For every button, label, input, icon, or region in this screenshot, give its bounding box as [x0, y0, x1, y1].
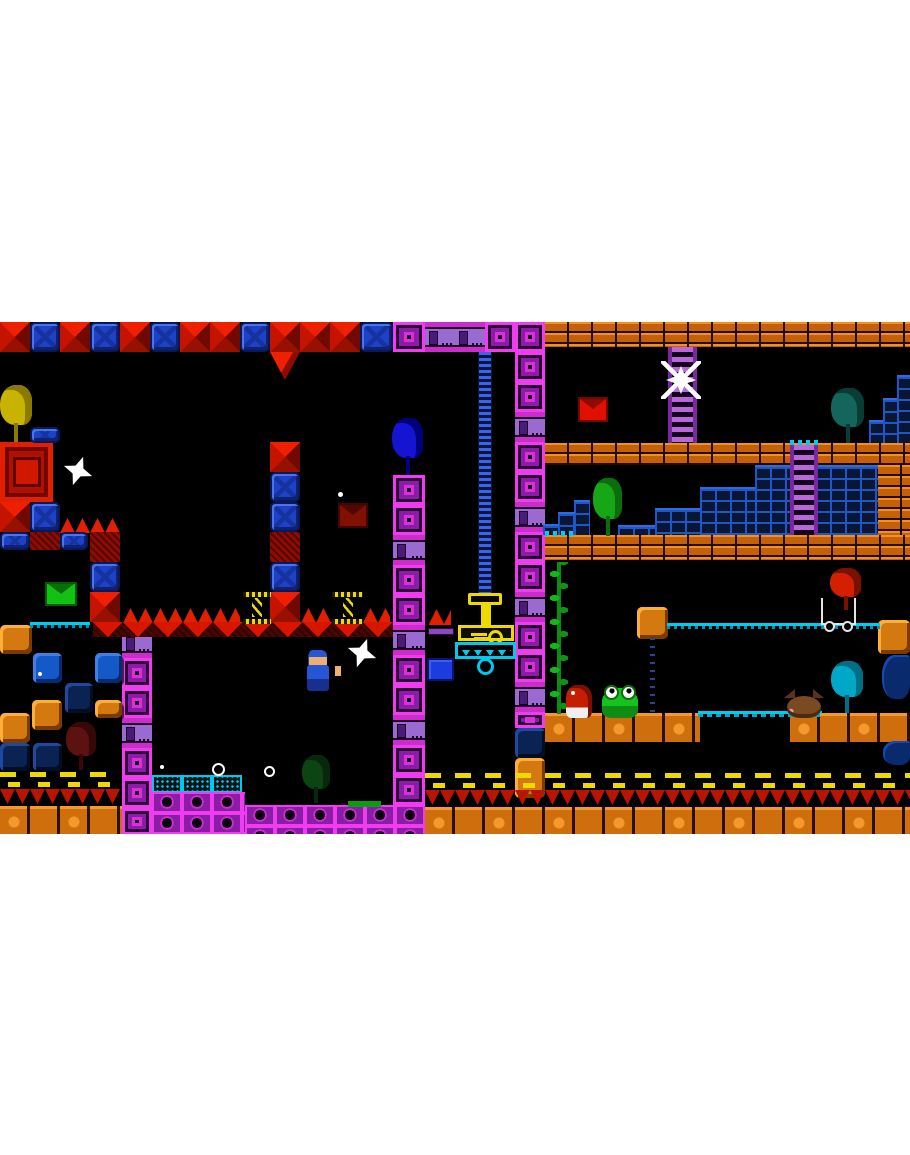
blue-block	[60, 532, 88, 550]
orange-block	[637, 607, 668, 639]
magenta-block-strip	[152, 792, 245, 834]
blue-brick-steps	[897, 375, 910, 443]
screenshot-page	[0, 0, 910, 1155]
navy-cave-block	[33, 743, 62, 771]
orange-brick-platform	[545, 322, 910, 347]
red-spike-block	[120, 322, 150, 352]
magenta-block	[515, 532, 545, 562]
red-spike-block	[270, 322, 300, 352]
navy-cave-block	[515, 728, 545, 758]
magenta-block	[393, 745, 425, 775]
white-cart	[821, 598, 856, 625]
red-spike-triangle	[270, 352, 300, 380]
press-cap	[468, 593, 502, 605]
yellow-spring	[332, 592, 363, 624]
cyan-circuit-platform	[182, 775, 212, 793]
water	[883, 741, 910, 765]
magenta-block	[515, 562, 545, 592]
orange-block	[0, 625, 32, 654]
press-stem	[481, 605, 491, 626]
magenta-block	[515, 652, 545, 682]
yellow-dash-band	[0, 772, 120, 789]
green-envelope	[45, 582, 77, 606]
yellow-bird	[0, 385, 36, 442]
blue-crate	[427, 658, 454, 681]
red-hatch-block	[30, 532, 60, 550]
red-spike-block	[300, 322, 330, 352]
spike-row-up	[123, 608, 240, 623]
red-drip-band	[0, 789, 120, 806]
hook-ring	[477, 658, 494, 675]
blue-block	[90, 562, 120, 592]
darkteal-bird	[831, 388, 868, 443]
blue-brick-steps	[574, 500, 590, 535]
purple-machine-block	[393, 625, 425, 655]
sparkle-ring	[264, 766, 275, 777]
magenta-block	[515, 352, 545, 382]
orange-ground	[425, 807, 910, 834]
red-hatch-block	[270, 532, 300, 562]
cyan-circuit-platform	[152, 775, 182, 793]
grabber-platform	[455, 642, 516, 659]
white-star	[343, 634, 381, 672]
magenta-block-strip	[245, 805, 425, 834]
blue-brick-steps	[655, 508, 700, 535]
sparkle-dot	[338, 492, 343, 497]
magenta-block	[393, 775, 425, 805]
brown-bat	[787, 696, 821, 718]
spike-row-up	[301, 608, 331, 623]
orange-block	[0, 713, 30, 743]
red-spike-block	[60, 322, 90, 352]
blue-block	[270, 472, 300, 502]
magenta-block	[515, 382, 545, 412]
white-star	[59, 452, 97, 490]
player-character	[305, 650, 333, 692]
game-playfield[interactable]	[0, 322, 910, 834]
blue-brick-steps	[700, 487, 755, 535]
blue-block	[270, 502, 300, 532]
magenta-block	[515, 712, 545, 728]
navy-cave-block	[0, 743, 30, 771]
blue-block	[150, 322, 180, 352]
cyan-rail	[30, 622, 90, 628]
red-spike-block	[90, 592, 120, 622]
white-spider	[662, 362, 700, 398]
magenta-block	[515, 622, 545, 652]
blue-block	[30, 322, 60, 352]
magenta-block	[515, 472, 545, 502]
magenta-block	[393, 322, 425, 352]
darkgreen-bird	[302, 755, 333, 803]
cyan-dashes	[545, 531, 577, 536]
darkred-bird	[66, 722, 99, 770]
red-spike-block	[270, 442, 300, 472]
water	[882, 655, 910, 699]
spike-row-up	[60, 518, 120, 533]
purple-ladder	[790, 445, 818, 535]
purple-machine-block	[515, 682, 545, 712]
blue-brick-steps	[869, 420, 883, 443]
purple-machine-block	[515, 592, 545, 622]
magenta-block	[393, 685, 425, 715]
red-spike-block	[330, 322, 360, 352]
yellow-spring	[243, 592, 271, 624]
magenta-block	[485, 322, 515, 352]
magenta-block	[393, 655, 425, 685]
orange-brick-platform	[878, 465, 910, 535]
key-bar	[458, 625, 514, 641]
orange-brick-platform	[545, 443, 910, 465]
red-drip-band	[425, 790, 910, 807]
sparkle-dot	[38, 672, 42, 676]
yellow-dash-band	[425, 773, 910, 790]
spike-row-up	[429, 609, 451, 625]
spike-row-up	[363, 608, 390, 623]
cyan-bird	[831, 661, 867, 713]
magenta-block	[393, 475, 425, 505]
cyan-circuit-platform	[212, 775, 242, 793]
purple-machine-block	[515, 502, 545, 532]
blue-block	[240, 322, 270, 352]
sparkle-dot	[160, 765, 164, 769]
blue-brick-steps	[883, 398, 897, 443]
red-gift-block	[0, 442, 53, 502]
purple-ledge	[428, 628, 454, 635]
orange-brick-platform	[545, 535, 910, 560]
purple-machine-block	[393, 535, 425, 565]
blue-block	[270, 562, 300, 592]
magenta-block	[393, 565, 425, 595]
purple-machine-block	[393, 715, 425, 745]
blue-block	[0, 532, 30, 550]
blue-bird	[392, 418, 426, 475]
purple-machine-block	[455, 322, 485, 352]
magenta-block	[515, 322, 545, 352]
red-spike-block	[180, 322, 210, 352]
blue-block	[30, 502, 60, 532]
magenta-block	[515, 442, 545, 472]
red-hatch-block	[90, 532, 120, 562]
orange-block	[878, 620, 910, 654]
magenta-block	[122, 688, 152, 718]
blue-block	[360, 322, 393, 352]
red-spike-block	[0, 322, 30, 352]
magenta-block	[393, 505, 425, 535]
magenta-block	[122, 748, 152, 778]
purple-machine-block	[122, 718, 152, 748]
darkred-envelope	[338, 503, 368, 528]
green-bird	[593, 478, 625, 536]
red-spike-block	[270, 592, 300, 622]
navy-cave-block	[65, 683, 93, 713]
magenta-block	[122, 658, 152, 688]
track-dots	[650, 638, 655, 712]
red-spike-base	[93, 622, 393, 637]
blue-cave-block	[95, 653, 122, 683]
orange-ground	[0, 806, 122, 834]
sparkle-ring	[212, 763, 225, 776]
magenta-block	[393, 595, 425, 625]
red-imp	[566, 685, 592, 718]
magenta-block	[122, 808, 152, 834]
red-spike-block	[0, 502, 30, 532]
magenta-block	[122, 778, 152, 808]
orange-block	[95, 700, 122, 718]
orange-block	[32, 700, 62, 730]
green-platform	[348, 801, 381, 807]
purple-machine-block	[425, 322, 455, 352]
blue-chain	[478, 352, 492, 595]
red-spike-block	[210, 322, 240, 352]
purple-machine-block	[515, 412, 545, 442]
blue-block	[90, 322, 120, 352]
red-envelope	[578, 397, 608, 422]
frog-enemy	[602, 688, 638, 718]
blue-cave-block	[33, 653, 62, 683]
